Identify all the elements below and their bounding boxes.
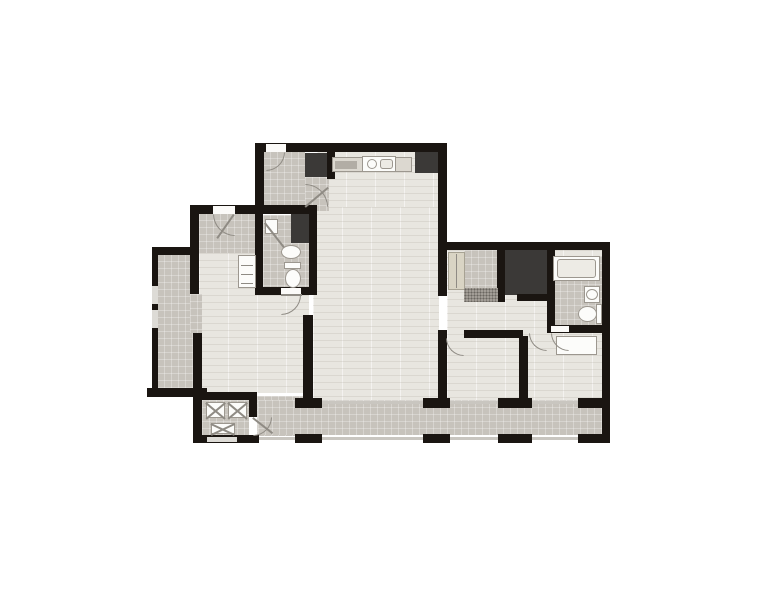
terrace-opening-floor (190, 294, 202, 333)
wall-bathroom1-left (255, 214, 263, 289)
wardrobe-divider (456, 254, 457, 288)
wall-south-b (423, 434, 450, 443)
bathroom1-cabinet (291, 214, 309, 243)
bathroom2-sink-bowl (586, 289, 598, 300)
wall-bathroom1-right (309, 207, 317, 295)
vanity-shelf (241, 274, 253, 275)
wall-south-a (295, 434, 322, 443)
terrace-window (152, 310, 158, 328)
foyer-closet (305, 153, 327, 177)
bathroom2-toilet-tank (596, 304, 602, 324)
wall-closet-left (497, 250, 505, 302)
balcony-rail (259, 437, 295, 440)
wall-outer-right (602, 242, 610, 443)
wall-laundry-right (249, 400, 257, 417)
wall-bedroom-divider (519, 336, 528, 400)
entry-mat (464, 288, 498, 302)
wall-stub-a (295, 398, 322, 408)
wall-rightwing-top (439, 242, 610, 250)
entry-door-gap (213, 206, 235, 214)
bathroom2-toilet (578, 306, 597, 322)
walkin-closet (505, 250, 547, 295)
cooktop-panel (380, 159, 393, 169)
bathroom1-door-leaf (281, 294, 302, 296)
wall-south-c (498, 434, 532, 443)
balcony-door-glass (532, 401, 578, 404)
living-room-floor (313, 207, 439, 401)
wall-laundry-top (193, 392, 257, 400)
bathroom1-toilet (285, 269, 301, 288)
balcony-door-glass (450, 401, 498, 404)
balcony-rail (322, 437, 423, 440)
vanity-shelf (241, 265, 253, 266)
balcony-rail (532, 437, 578, 440)
wall-bedroom2-top (464, 330, 523, 338)
wall-bedroom1-living (303, 315, 313, 400)
wall-stub-d (578, 398, 604, 408)
wall-living-right-lower (438, 250, 447, 296)
wall-terrace-divider (193, 333, 202, 390)
floor-plan-canvas (0, 0, 760, 590)
wall-living-right (438, 143, 447, 253)
wall-closet-bottom (517, 294, 547, 301)
laundry-window (207, 437, 237, 442)
terrace-floor (157, 254, 193, 391)
terrace-window (152, 286, 158, 304)
bathroom1-sink (281, 245, 301, 259)
kitchen-appliance (335, 161, 357, 169)
bathroom1-toilet-tank (284, 262, 301, 269)
bathtub-inner (557, 259, 596, 278)
wall-entry-top (190, 205, 317, 214)
wall-topblock-left (255, 143, 264, 213)
kitchen-closet (415, 152, 438, 173)
balcony-rail (450, 437, 498, 440)
vanity-shelf (241, 283, 253, 284)
balcony-door-glass (322, 401, 423, 404)
bathroom2-door-gap (551, 326, 569, 332)
apartment-floor-plan (0, 0, 760, 590)
service-door-gap (266, 144, 286, 152)
cooktop-burner (367, 159, 377, 169)
wall-terrace-top (152, 247, 194, 255)
